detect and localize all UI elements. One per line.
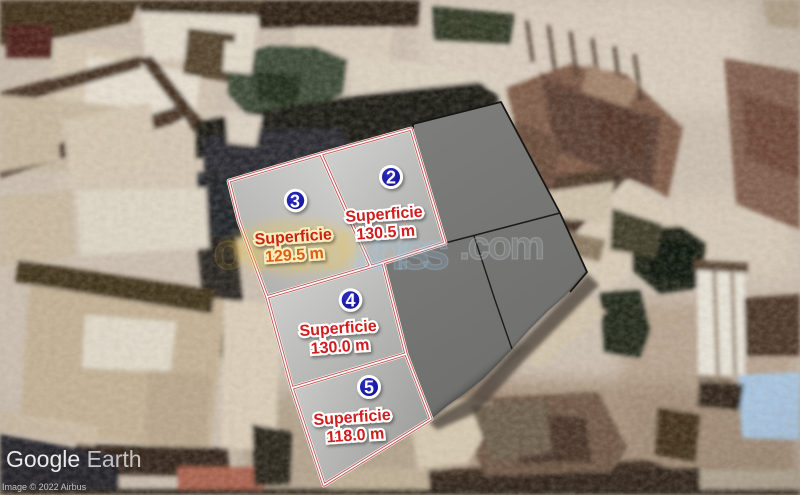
svg-text:Image © 2022 Airbus: Image © 2022 Airbus	[2, 482, 87, 492]
svg-text:Google Earth: Google Earth	[6, 446, 142, 472]
svg-text:.com: .com	[459, 224, 545, 268]
svg-text:4: 4	[345, 291, 355, 311]
svg-text:2: 2	[386, 168, 396, 188]
svg-text:3: 3	[290, 192, 300, 212]
svg-text:5: 5	[364, 378, 374, 398]
